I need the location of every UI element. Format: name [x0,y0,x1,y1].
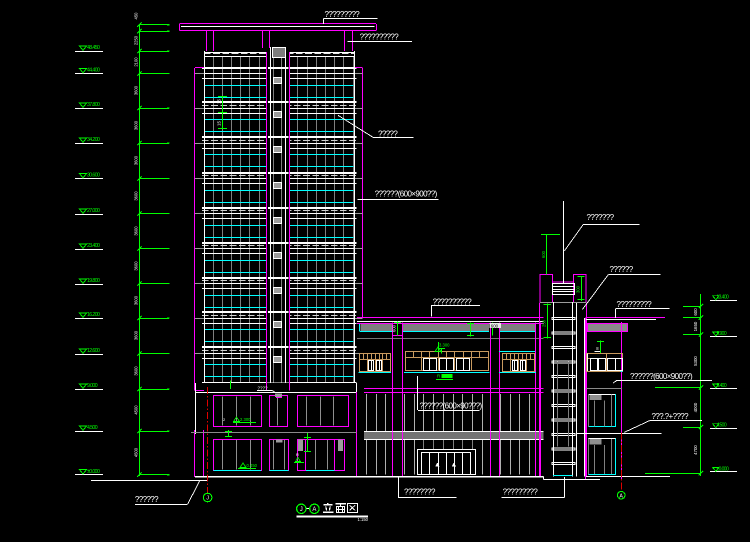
svg-text:??????????: ?????????? [360,33,400,42]
svg-text:3600: 3600 [134,191,139,201]
svg-text:1650: 1650 [693,321,698,331]
svg-text:3600: 3600 [134,295,139,305]
svg-text:30.600: 30.600 [87,173,100,179]
svg-text:?????????: ????????? [325,10,361,19]
svg-text:600: 600 [491,323,499,328]
svg-text:2100: 2100 [134,57,139,67]
svg-text:3600: 3600 [134,120,139,130]
svg-text:48.450: 48.450 [87,45,100,51]
svg-text:9.900: 9.900 [717,331,727,337]
svg-text:?????????: ????????? [503,488,539,497]
svg-text:34.200: 34.200 [87,137,100,143]
svg-text:3600: 3600 [134,366,139,376]
svg-text:13.400: 13.400 [717,295,730,301]
svg-text:R: R [296,452,299,457]
svg-text:4.500: 4.500 [87,425,98,431]
svg-text:19.800: 19.800 [87,278,100,284]
svg-text:3600: 3600 [134,261,139,271]
svg-text:12.600: 12.600 [87,348,100,354]
svg-text:4500: 4500 [134,447,139,457]
svg-text:3600: 3600 [134,330,139,340]
svg-text:0.450: 0.450 [247,463,258,468]
svg-text:4500: 4500 [134,405,139,415]
svg-text:2.300: 2.300 [240,417,251,422]
svg-text:J: J [206,496,209,502]
svg-text:15: 15 [217,120,222,126]
svg-text:???????: ??????? [587,213,615,222]
svg-text:3600: 3600 [134,226,139,236]
svg-text:4.500: 4.500 [717,423,727,429]
svg-text:3.300: 3.300 [439,343,450,348]
svg-text:??????(600×90???): ??????(600×90???) [420,402,483,411]
svg-text:600: 600 [541,250,546,258]
svg-text:3600: 3600 [134,85,139,95]
svg-text:600: 600 [693,308,698,316]
svg-text:???.?+????: ???.?+???? [652,412,690,421]
svg-text:A: A [312,507,316,513]
svg-text:5300: 5300 [693,356,698,366]
svg-text:????: ???? [258,385,269,390]
svg-text:44.400: 44.400 [87,68,100,74]
svg-text:3600: 3600 [134,155,139,165]
svg-text:±0.000: ±0.000 [717,466,729,472]
svg-text:27.000: 27.000 [87,208,100,214]
svg-text:??????(600×900??): ??????(600×900??) [375,190,438,199]
svg-text:5.400: 5.400 [717,383,727,389]
svg-text:4700: 4700 [693,445,698,455]
svg-text:23.400: 23.400 [87,243,100,249]
svg-text:??????(600×900??): ??????(600×900??) [630,372,693,381]
svg-text:4000: 4000 [693,402,698,412]
svg-text:1:150: 1:150 [358,517,369,522]
svg-text:250: 250 [542,319,547,327]
svg-text:15: 15 [217,98,222,104]
svg-text:16.200: 16.200 [87,312,100,318]
svg-text:37.800: 37.800 [87,102,100,108]
svg-text:450: 450 [134,12,139,20]
svg-text:??????: ?????? [610,265,634,274]
svg-text:????????: ???????? [404,488,436,497]
svg-text:600: 600 [392,324,397,332]
svg-text:J: J [300,507,303,513]
svg-text:300: 300 [576,285,581,293]
svg-text:±0.000: ±0.000 [87,469,100,475]
svg-text:?????????: ????????? [617,300,653,309]
svg-text:??????: ?????? [135,495,159,504]
svg-text:2250: 2250 [134,35,139,45]
svg-text:9.000: 9.000 [87,383,98,389]
